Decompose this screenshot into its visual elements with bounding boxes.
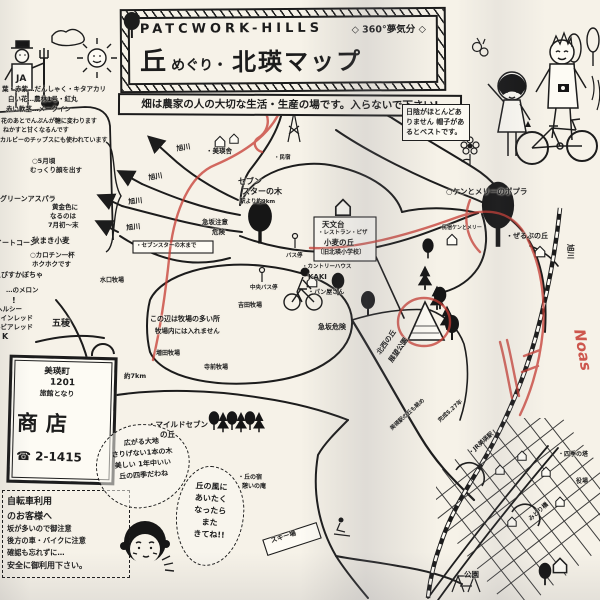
bike-notice-line: 確認も忘れずに… xyxy=(7,548,125,558)
bike-notice-line: 安全に御利用下さい。 xyxy=(7,560,125,571)
map-label: ・パン屋さん xyxy=(308,290,344,296)
map-label: 白い花…農林1号・紅丸 xyxy=(8,96,78,103)
map-label: 急坂危険 xyxy=(318,324,346,331)
map-label: 公園 xyxy=(464,571,479,579)
map-label: 花のあとでんぷんが糖に変わります xyxy=(1,119,97,125)
map-label: 中央バス停 xyxy=(250,286,278,292)
map-label: セブン xyxy=(238,178,262,186)
map-label: 憩いの庵 xyxy=(242,484,266,490)
skier-icon xyxy=(334,518,350,537)
map-label: 急坂注意 xyxy=(202,219,228,226)
map-label: …のメロン xyxy=(6,287,39,294)
bike-notice-box: 自転車利用 のお客様へ 坂が多いので御注意 後方の車・バイクに注意 確認も忘れず… xyxy=(2,490,130,578)
sign-note: 旅館となり xyxy=(40,388,108,400)
map-label: なるのは xyxy=(50,213,76,220)
cloud-icon xyxy=(52,29,84,45)
sign-hook xyxy=(92,344,114,356)
map-label: カルビーのチップスにも使われています xyxy=(0,138,108,144)
map-label: ・丘の宿 xyxy=(238,475,262,481)
map-label: KAKI xyxy=(308,274,327,281)
map-label: ! xyxy=(12,297,16,305)
map-label: ホクホクです xyxy=(32,261,71,268)
scanned-map-page: JA xyxy=(0,0,600,600)
sign-town: 美瑛町 xyxy=(44,365,108,379)
map-label: の丘 xyxy=(160,431,175,439)
tree-icon xyxy=(122,11,142,41)
bike-notice-line: 坂が多いので御注意 xyxy=(7,524,125,534)
map-label: 葉・赤紫…だんしゃく・キタアカリ xyxy=(2,86,106,93)
map-label: ルビアレッド xyxy=(0,324,33,331)
map-label: 旭川 xyxy=(126,224,141,232)
bike-notice-line: 後方の車・バイクに注意 xyxy=(7,536,125,546)
farmer-badge-label: JA xyxy=(15,74,26,84)
map-label: 民宿ケンとメリー xyxy=(442,226,482,231)
map-label: ・ぜるぶの丘 xyxy=(506,233,548,240)
map-brand: PATCWORK-HILLS xyxy=(140,21,323,37)
shade-note-box: 日陰がほとんどありません 帽子があるとベストです。 xyxy=(402,104,470,141)
map-label: ○5月頃 xyxy=(32,158,55,165)
map-label: ・カントリーハウス xyxy=(302,265,351,271)
map-label: スイートコーン xyxy=(0,240,37,247)
map-label: ねかすと甘くなるんです xyxy=(3,128,69,134)
map-label: ・マイルドセブン xyxy=(148,421,208,429)
pyramid-observatory-icon xyxy=(408,302,444,340)
map-label: ・レストラン・ピザ xyxy=(318,231,368,237)
map-label: ・民宿 xyxy=(274,156,291,162)
map-label: ヘルシー xyxy=(0,306,22,313)
map-label: 増田牧場 xyxy=(156,351,180,357)
bubble-line: きてね!! xyxy=(176,527,242,541)
map-label: 吉田牧場 xyxy=(238,303,262,309)
map-label: 秋まき小麦 xyxy=(32,237,70,245)
map-label: 〔旧北瑛小学校〕 xyxy=(317,250,365,256)
map-label: 小麦の丘 xyxy=(324,239,354,247)
map-label: むっくり顔を出す xyxy=(30,167,82,174)
map-label: 危険 xyxy=(212,229,225,236)
map-title-main: 北瑛マップ xyxy=(232,41,362,77)
map-label: グリーンアスパラ xyxy=(0,196,56,203)
map-label: 牧場内には入れません xyxy=(155,328,220,335)
map-label: 駅より約9km xyxy=(240,200,275,206)
kids-bicycle-illustration xyxy=(461,33,600,166)
sign-phone: ☎ 2-1415 xyxy=(16,449,106,465)
map-label: ワインレッド xyxy=(0,315,33,322)
map-label: ・四季の塔 xyxy=(558,452,588,458)
map-label: ・美瑛舎 xyxy=(206,148,232,155)
map-label: 寺前牧場 xyxy=(204,365,228,371)
map-label: 天文台 xyxy=(322,221,345,229)
map-label: K xyxy=(2,333,8,341)
map-label: この辺は牧場の多い所 xyxy=(150,316,220,323)
map-label: 役場 xyxy=(576,479,588,485)
map-label: 7月初〜末 xyxy=(48,222,79,229)
map-label: 水口牧場 xyxy=(100,278,124,284)
map-title-hill: 丘 xyxy=(140,41,166,78)
map-label: バス停 xyxy=(286,254,303,260)
map-label: 旭川 xyxy=(128,198,143,206)
map-label: スターの木 xyxy=(242,188,282,196)
map-label: ○ケンとメリーのポプラ xyxy=(446,188,527,196)
title-banner: PATCWORK-HILLS ◇ 360°夢気分 ◇ 丘 めぐり・ 北瑛マップ xyxy=(120,7,447,93)
butterfly-icon xyxy=(473,38,489,56)
map-label: 五稜 xyxy=(52,320,70,329)
map-label: ○カロチン一杯 xyxy=(30,252,75,259)
bike-notice-line: のお客様へ xyxy=(7,509,125,522)
map-title-meguri: めぐり・ xyxy=(171,54,227,77)
sign-number: 1201 xyxy=(50,378,108,390)
map-tagline: ◇ 360°夢気分 ◇ xyxy=(351,21,425,36)
sun-icon xyxy=(77,38,117,78)
map-label: ・セブンスターの木まで xyxy=(136,244,196,250)
map-label: 約7km xyxy=(124,373,146,380)
map-label: 旭川 xyxy=(567,244,575,259)
map-label: えびすかぼちゃ xyxy=(0,272,43,279)
map-label: 赤い軟茎…メークイン xyxy=(6,106,71,113)
sign-shop-name: 商店 xyxy=(17,407,108,439)
grass-strokes xyxy=(592,76,600,110)
map-label: 黄金色に xyxy=(52,204,78,211)
